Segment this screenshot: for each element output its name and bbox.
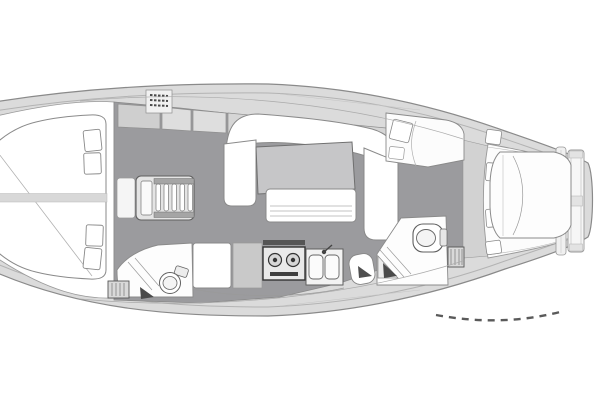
- cockpit-cushion: [485, 240, 502, 255]
- locker-shelf-segment: [193, 110, 226, 133]
- stove-knob-strip: [270, 272, 298, 276]
- sideboard-end-panel: [141, 181, 152, 215]
- settee-left-arm: [224, 140, 256, 206]
- aft-toilet-tank: [440, 229, 447, 246]
- sink-basin: [309, 255, 323, 279]
- vberth-cushion: [86, 225, 104, 247]
- sideboard-slat: [156, 184, 161, 211]
- cockpit-table: [490, 152, 571, 238]
- platform-cap-bottom: [570, 244, 583, 251]
- aft-cabin-pillow: [389, 119, 413, 143]
- stove-backsplash: [263, 240, 305, 245]
- vberth-cushion: [84, 153, 102, 175]
- sideboard-slat: [188, 184, 193, 211]
- forward-vanity-locker: [108, 281, 129, 298]
- galley-counter: [233, 243, 262, 288]
- platform-cap-top: [570, 151, 583, 158]
- bulkhead-cabinet: [117, 178, 135, 218]
- yacht-floorplan-svg: [0, 0, 600, 400]
- hull-window-dashes: [436, 312, 560, 320]
- sideboard-slat-rail-top: [154, 179, 194, 185]
- vberth-cushion: [83, 247, 102, 270]
- aft-vanity-locker: [448, 247, 464, 267]
- vberth-cushion: [83, 129, 102, 152]
- sideboard-slat: [172, 184, 177, 211]
- sideboard-slat-rail-bottom: [154, 212, 194, 218]
- bow-seam-band: [0, 194, 107, 203]
- saloon-table: [256, 142, 355, 194]
- sideboard-slat: [164, 184, 169, 211]
- aft-cabin-cushion: [388, 146, 404, 160]
- cockpit-cushion: [485, 129, 502, 145]
- floorplan-canvas: [0, 0, 600, 400]
- sink-basin: [325, 255, 339, 279]
- forward-toilet-seat: [163, 277, 177, 290]
- stove-burner-center: [291, 258, 295, 262]
- stove-burner-center: [273, 258, 277, 262]
- center-bench: [266, 189, 356, 222]
- sideboard-slat: [180, 184, 185, 211]
- galley-fridge: [193, 243, 231, 288]
- aft-toilet-bowl: [417, 230, 436, 247]
